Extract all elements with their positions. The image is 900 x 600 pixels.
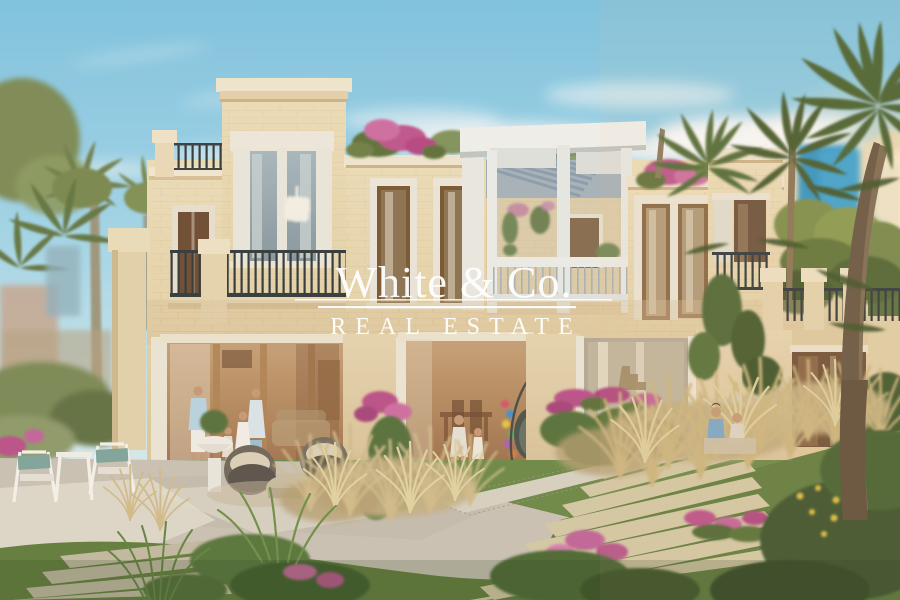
svg-text:REAL ESTATE: REAL ESTATE: [330, 314, 582, 340]
